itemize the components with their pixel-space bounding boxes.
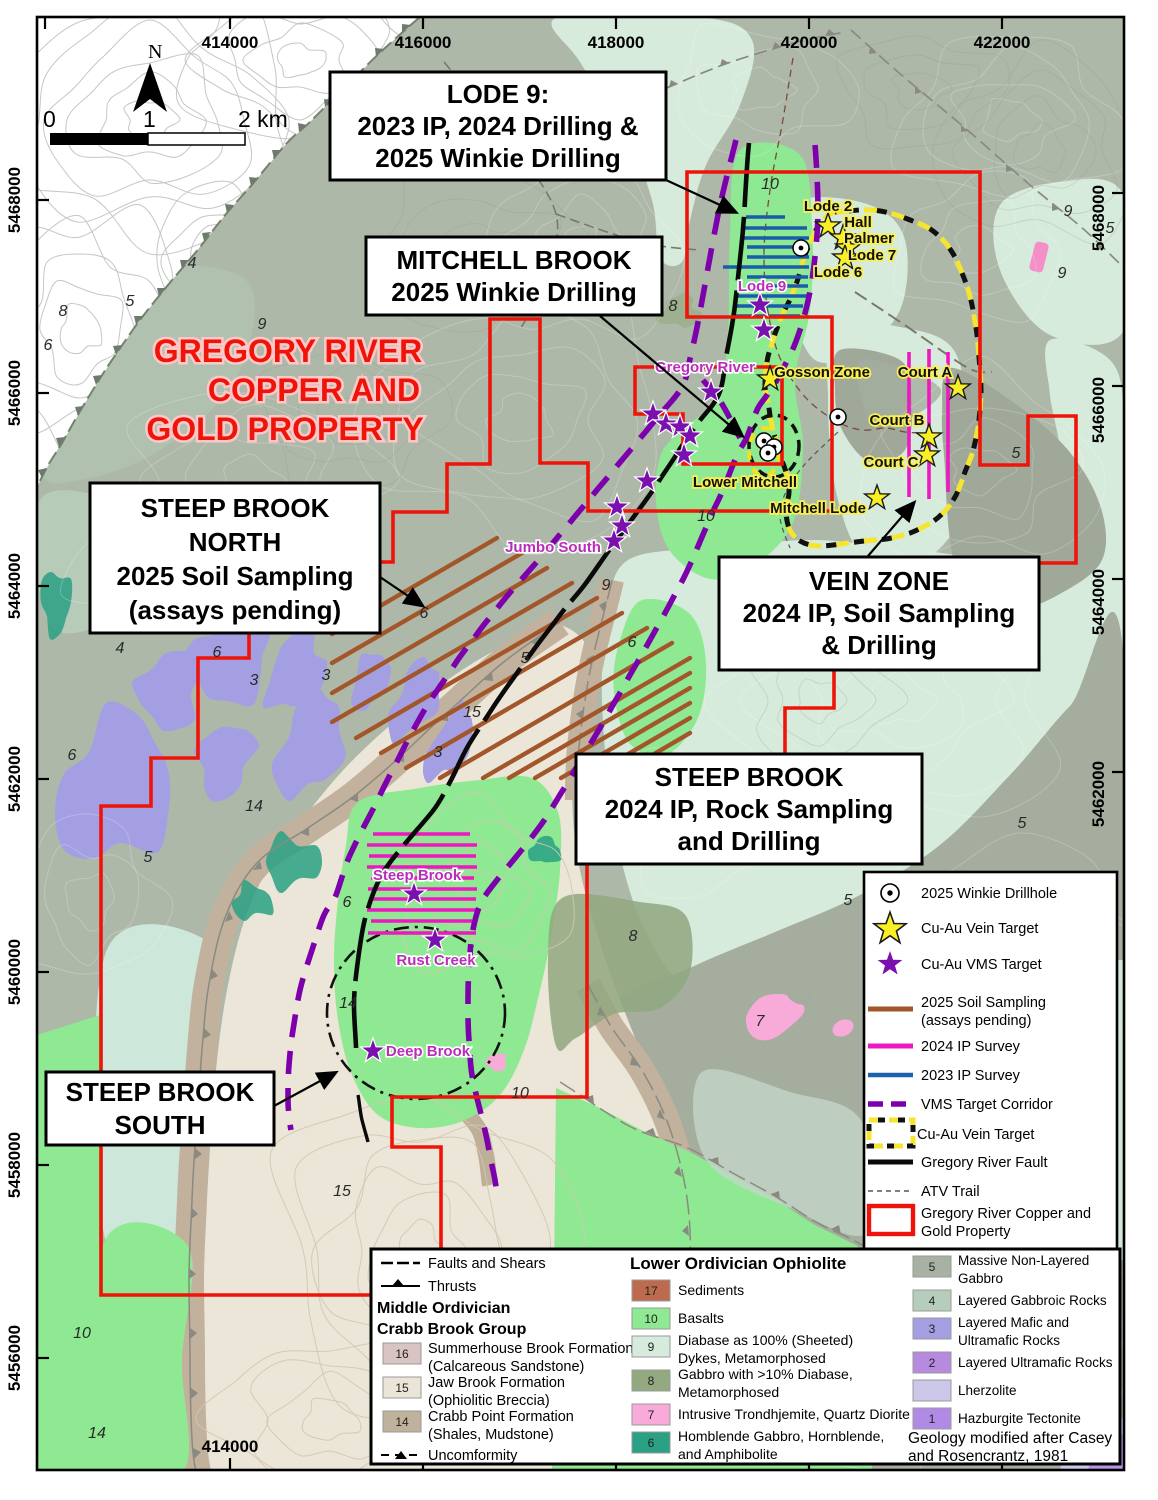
svg-text:10: 10: [73, 1325, 91, 1342]
svg-text:2: 2: [929, 1356, 936, 1370]
svg-text:(Shales, Mudstone): (Shales, Mudstone): [428, 1427, 554, 1443]
svg-text:Lower Mitchell: Lower Mitchell: [693, 474, 797, 491]
svg-text:4: 4: [929, 1294, 936, 1308]
svg-text:2024 IP, Rock Sampling: 2024 IP, Rock Sampling: [605, 794, 894, 824]
svg-text:5464000: 5464000: [5, 553, 24, 619]
svg-text:9: 9: [648, 1340, 655, 1354]
svg-text:Ultramafic Rocks: Ultramafic Rocks: [958, 1333, 1060, 1348]
svg-text:418000: 418000: [588, 33, 645, 52]
svg-text:3: 3: [250, 672, 259, 689]
svg-text:Palmer: Palmer: [844, 230, 894, 247]
svg-text:5: 5: [144, 849, 153, 866]
svg-text:420000: 420000: [781, 33, 838, 52]
svg-text:15: 15: [463, 704, 481, 721]
svg-text:5462000: 5462000: [1089, 761, 1108, 827]
svg-text:Summerhouse Brook Formation: Summerhouse Brook Formation: [428, 1341, 634, 1357]
svg-text:Deep Brook: Deep Brook: [386, 1043, 471, 1060]
svg-text:7: 7: [756, 1013, 766, 1030]
svg-text:COPPER AND: COPPER AND: [208, 372, 420, 408]
svg-text:15: 15: [395, 1381, 409, 1395]
svg-text:VEIN ZONE: VEIN ZONE: [809, 566, 949, 596]
svg-text:15: 15: [333, 1183, 351, 1200]
svg-text:7: 7: [648, 1408, 655, 1422]
svg-text:416000: 416000: [395, 33, 452, 52]
svg-text:6: 6: [420, 605, 429, 622]
svg-text:Mitchell Lode: Mitchell Lode: [770, 500, 866, 517]
svg-text:Layered Ultramafic Rocks: Layered Ultramafic Rocks: [958, 1355, 1113, 1370]
svg-text:and Rosencrantz, 1981: and Rosencrantz, 1981: [908, 1448, 1068, 1465]
svg-text:Lode 7: Lode 7: [848, 247, 896, 264]
svg-text:Gabbro with >10% Diabase,: Gabbro with >10% Diabase,: [678, 1366, 853, 1382]
svg-text:14: 14: [88, 1425, 106, 1442]
svg-text:N: N: [148, 41, 162, 63]
svg-text:Homblende Gabbro, Hornblende,: Homblende Gabbro, Hornblende,: [678, 1428, 884, 1444]
svg-text:Uncomformity: Uncomformity: [428, 1448, 518, 1464]
svg-text:Middle Ordivician: Middle Ordivician: [377, 1300, 510, 1317]
svg-text:10: 10: [644, 1312, 658, 1326]
svg-text:414000: 414000: [202, 1437, 259, 1456]
svg-text:422000: 422000: [974, 33, 1031, 52]
svg-text:5468000: 5468000: [1089, 185, 1108, 251]
svg-text:Thrusts: Thrusts: [428, 1279, 476, 1295]
svg-text:16: 16: [395, 1347, 409, 1361]
svg-text:Court B: Court B: [870, 412, 925, 429]
svg-text:2025 Soil Sampling: 2025 Soil Sampling: [117, 561, 354, 591]
svg-text:and Amphibolite: and Amphibolite: [678, 1446, 778, 1462]
svg-text:STEEP BROOK: STEEP BROOK: [66, 1077, 255, 1107]
svg-text:2023 IP Survey: 2023 IP Survey: [921, 1068, 1021, 1084]
svg-text:MITCHELL BROOK: MITCHELL BROOK: [397, 245, 632, 275]
svg-text:8: 8: [669, 298, 678, 315]
svg-text:Steep Brook: Steep Brook: [373, 867, 462, 884]
svg-text:ATV Trail: ATV Trail: [921, 1184, 980, 1200]
svg-text:6: 6: [68, 747, 77, 764]
svg-text:9: 9: [1064, 203, 1073, 220]
svg-text:Hazburgite Tectonite: Hazburgite Tectonite: [958, 1411, 1081, 1426]
svg-text:2025 Winkie Drilling: 2025 Winkie Drilling: [375, 143, 620, 173]
svg-text:5466000: 5466000: [5, 360, 24, 426]
svg-text:Gregory River: Gregory River: [655, 359, 755, 376]
svg-text:Gregory River Fault: Gregory River Fault: [921, 1155, 1048, 1171]
svg-text:9: 9: [258, 316, 267, 333]
svg-text:5: 5: [521, 650, 530, 667]
svg-text:414000: 414000: [202, 33, 259, 52]
svg-text:5464000: 5464000: [1089, 569, 1108, 635]
svg-text:14: 14: [339, 995, 357, 1012]
svg-text:2025 Soil Sampling: 2025 Soil Sampling: [921, 995, 1046, 1011]
svg-text:NORTH: NORTH: [189, 527, 281, 557]
svg-text:3: 3: [929, 1322, 936, 1336]
svg-text:Cu-Au VMS Target: Cu-Au VMS Target: [921, 957, 1042, 973]
svg-text:0: 0: [43, 106, 56, 132]
svg-text:Basalts: Basalts: [678, 1310, 724, 1326]
svg-text:5460000: 5460000: [5, 939, 24, 1005]
svg-text:SOUTH: SOUTH: [115, 1110, 206, 1140]
svg-text:6: 6: [213, 644, 222, 661]
svg-text:6: 6: [648, 1436, 655, 1450]
svg-text:Cu-Au Vein Target: Cu-Au Vein Target: [917, 1127, 1034, 1143]
svg-text:5462000: 5462000: [5, 746, 24, 812]
svg-text:Lherzolite: Lherzolite: [958, 1383, 1017, 1398]
svg-text:10: 10: [511, 1085, 529, 1102]
svg-text:GOLD PROPERTY: GOLD PROPERTY: [146, 411, 423, 447]
svg-text:Cu-Au Vein Target: Cu-Au Vein Target: [921, 921, 1038, 937]
svg-text:6: 6: [343, 894, 352, 911]
svg-text:3: 3: [322, 667, 331, 684]
svg-text:Hall: Hall: [844, 214, 872, 231]
svg-text:4: 4: [188, 255, 197, 272]
svg-text:2 km: 2 km: [238, 106, 288, 132]
svg-text:Geology modified after Casey: Geology modified after Casey: [908, 1430, 1112, 1447]
svg-text:1: 1: [143, 106, 156, 132]
svg-text:14: 14: [395, 1415, 409, 1429]
svg-text:Gregory River Copper and: Gregory River Copper and: [921, 1206, 1091, 1222]
svg-text:Crabb Brook Group: Crabb Brook Group: [377, 1321, 527, 1338]
svg-text:STEEP BROOK: STEEP BROOK: [655, 762, 844, 792]
svg-text:and Drilling: and Drilling: [678, 826, 821, 856]
svg-text:Faults and Shears: Faults and Shears: [428, 1256, 546, 1272]
svg-text:Gold Property: Gold Property: [921, 1224, 1011, 1240]
svg-text:4: 4: [116, 640, 125, 657]
svg-text:Court C: Court C: [864, 454, 919, 471]
svg-text:2025 Winkie Drilling: 2025 Winkie Drilling: [391, 277, 636, 307]
svg-text:2024 IP, Soil Sampling: 2024 IP, Soil Sampling: [743, 598, 1016, 628]
svg-text:Layered Gabbroic Rocks: Layered Gabbroic Rocks: [958, 1293, 1107, 1308]
svg-text:14: 14: [245, 798, 263, 815]
svg-text:Lode 6: Lode 6: [814, 264, 862, 281]
svg-text:10: 10: [697, 508, 715, 525]
svg-text:17: 17: [644, 1284, 658, 1298]
svg-text:6: 6: [628, 634, 637, 651]
svg-text:Dykes, Metamorphosed: Dykes, Metamorphosed: [678, 1350, 826, 1366]
svg-text:8: 8: [629, 928, 638, 945]
svg-text:5458000: 5458000: [5, 1132, 24, 1198]
svg-text:Crabb Point Formation: Crabb Point Formation: [428, 1409, 574, 1425]
svg-text:Intrusive Trondhjemite, Quartz: Intrusive Trondhjemite, Quartz Diorite: [678, 1406, 910, 1422]
svg-text:VMS Target Corridor: VMS Target Corridor: [921, 1097, 1053, 1113]
svg-text:(assays pending): (assays pending): [921, 1013, 1031, 1029]
svg-text:Layered Mafic and: Layered Mafic and: [958, 1315, 1069, 1330]
svg-text:Gabbro: Gabbro: [958, 1271, 1003, 1286]
svg-text:Court A: Court A: [898, 364, 953, 381]
svg-text:8: 8: [648, 1374, 655, 1388]
svg-text:5456000: 5456000: [5, 1325, 24, 1391]
svg-text:LODE 9:: LODE 9:: [447, 79, 550, 109]
svg-text:Metamorphosed: Metamorphosed: [678, 1384, 779, 1400]
svg-text:5466000: 5466000: [1089, 377, 1108, 443]
svg-text:1: 1: [929, 1412, 936, 1426]
svg-text:5468000: 5468000: [5, 167, 24, 233]
svg-text:Gosson Zone: Gosson Zone: [774, 364, 870, 381]
svg-text:5: 5: [844, 892, 853, 909]
svg-text:Massive Non-Layered: Massive Non-Layered: [958, 1253, 1089, 1268]
svg-text:Lode 9: Lode 9: [738, 278, 786, 295]
svg-text:6: 6: [44, 337, 53, 354]
svg-text:5: 5: [1012, 445, 1021, 462]
svg-text:9: 9: [602, 577, 611, 594]
svg-text:Jaw Brook Formation: Jaw Brook Formation: [428, 1375, 565, 1391]
svg-text:(Ophiolitic Breccia): (Ophiolitic Breccia): [428, 1393, 550, 1409]
svg-text:5: 5: [126, 293, 135, 310]
svg-text:9: 9: [1058, 265, 1067, 282]
svg-text:3: 3: [434, 744, 443, 761]
svg-text:Rust Creek: Rust Creek: [396, 952, 476, 969]
svg-text:5: 5: [929, 1260, 936, 1274]
svg-text:2024 IP Survey: 2024 IP Survey: [921, 1039, 1021, 1055]
svg-text:Sediments: Sediments: [678, 1282, 744, 1298]
svg-text:10: 10: [761, 176, 779, 193]
svg-text:2023 IP, 2024 Drilling &: 2023 IP, 2024 Drilling &: [357, 111, 638, 141]
svg-text:Lode 2: Lode 2: [804, 198, 852, 215]
svg-text:(assays pending): (assays pending): [129, 595, 341, 625]
svg-text:5: 5: [1018, 815, 1027, 832]
svg-text:Jumbo South: Jumbo South: [505, 539, 601, 556]
svg-text:& Drilling: & Drilling: [821, 630, 937, 660]
svg-text:GREGORY RIVER: GREGORY RIVER: [154, 333, 423, 369]
svg-text:Diabase as 100% (Sheeted): Diabase as 100% (Sheeted): [678, 1332, 853, 1348]
svg-text:STEEP BROOK: STEEP BROOK: [141, 493, 330, 523]
svg-text:Lower Ordivician Ophiolite: Lower Ordivician Ophiolite: [630, 1254, 846, 1273]
svg-text:(Calcareous Sandstone): (Calcareous Sandstone): [428, 1359, 584, 1375]
svg-text:2025 Winkie Drillhole: 2025 Winkie Drillhole: [921, 886, 1057, 902]
svg-text:8: 8: [59, 303, 68, 320]
